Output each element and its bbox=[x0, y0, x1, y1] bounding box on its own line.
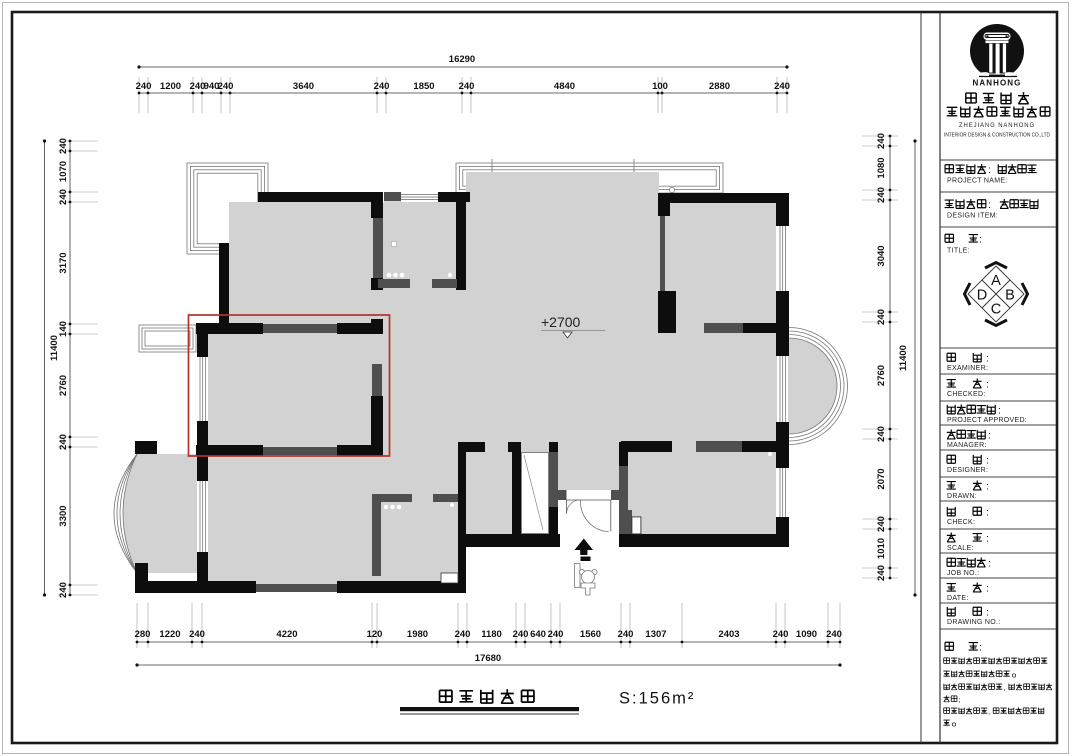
svg-text::: : bbox=[988, 199, 991, 211]
svg-text:DATE:: DATE: bbox=[947, 595, 969, 602]
svg-text:1090: 1090 bbox=[796, 629, 817, 640]
svg-text:240: 240 bbox=[374, 81, 390, 92]
svg-text:1080: 1080 bbox=[876, 157, 887, 178]
svg-text:4840: 4840 bbox=[554, 81, 575, 92]
svg-text:A: A bbox=[991, 273, 1001, 289]
svg-text:D: D bbox=[977, 288, 987, 304]
svg-text::: : bbox=[986, 533, 989, 545]
svg-text:240: 240 bbox=[876, 426, 887, 442]
svg-text:140: 140 bbox=[58, 321, 69, 337]
svg-text::: : bbox=[986, 455, 989, 467]
svg-text:240: 240 bbox=[218, 81, 234, 92]
svg-text::: : bbox=[986, 353, 989, 365]
svg-text:MANAGER:: MANAGER: bbox=[947, 442, 987, 449]
svg-text:17680: 17680 bbox=[475, 653, 501, 664]
svg-text:240: 240 bbox=[774, 81, 790, 92]
svg-text:C: C bbox=[991, 302, 1001, 318]
svg-text:B: B bbox=[1005, 288, 1015, 304]
svg-text:240: 240 bbox=[459, 81, 475, 92]
svg-text:1980: 1980 bbox=[407, 629, 428, 640]
svg-text::: : bbox=[988, 430, 991, 442]
svg-text:240: 240 bbox=[513, 629, 529, 640]
svg-text:120: 120 bbox=[367, 629, 383, 640]
svg-text:1307: 1307 bbox=[645, 629, 666, 640]
svg-text:+2700: +2700 bbox=[541, 314, 581, 330]
svg-text:3170: 3170 bbox=[58, 252, 69, 273]
svg-text:2760: 2760 bbox=[876, 365, 887, 386]
svg-text:S:156m²: S:156m² bbox=[619, 690, 695, 708]
svg-text:,: , bbox=[1004, 683, 1006, 692]
svg-text::: : bbox=[998, 405, 1001, 417]
svg-text:240: 240 bbox=[826, 629, 842, 640]
svg-text::: : bbox=[979, 642, 982, 654]
svg-text:240: 240 bbox=[189, 629, 205, 640]
svg-text:240: 240 bbox=[876, 133, 887, 149]
svg-text:1070: 1070 bbox=[58, 161, 69, 182]
svg-text:240: 240 bbox=[876, 187, 887, 203]
svg-text:1010: 1010 bbox=[876, 538, 887, 559]
svg-text:DESIGNER:: DESIGNER: bbox=[947, 467, 988, 474]
svg-text:1180: 1180 bbox=[481, 629, 502, 640]
svg-text:EXAMINER:: EXAMINER: bbox=[947, 365, 988, 372]
svg-text:100: 100 bbox=[652, 81, 668, 92]
svg-text::: : bbox=[986, 583, 989, 595]
svg-text:SCALE:: SCALE: bbox=[947, 545, 974, 552]
svg-text:3300: 3300 bbox=[58, 505, 69, 526]
svg-text:11400: 11400 bbox=[898, 345, 909, 371]
svg-text:240: 240 bbox=[58, 434, 69, 450]
svg-text:240: 240 bbox=[58, 189, 69, 205]
svg-text:TITLE:: TITLE: bbox=[947, 248, 970, 255]
svg-text:DESIGN ITEM:: DESIGN ITEM: bbox=[947, 213, 998, 220]
svg-text:CHECKED:: CHECKED: bbox=[947, 391, 986, 398]
svg-text:PROJECT NAME:: PROJECT NAME: bbox=[947, 178, 1008, 185]
svg-text:1850: 1850 bbox=[413, 81, 434, 92]
svg-text:NANHONG: NANHONG bbox=[972, 79, 1021, 88]
svg-text:640: 640 bbox=[530, 629, 546, 640]
svg-text:240: 240 bbox=[58, 138, 69, 154]
svg-text:240: 240 bbox=[618, 629, 634, 640]
svg-text:ZHEJIANG NANHONG: ZHEJIANG NANHONG bbox=[959, 123, 1035, 129]
svg-text:280: 280 bbox=[135, 629, 151, 640]
svg-text::: : bbox=[979, 234, 982, 246]
svg-text:1560: 1560 bbox=[580, 629, 601, 640]
svg-text:240: 240 bbox=[58, 582, 69, 598]
svg-text:240: 240 bbox=[548, 629, 564, 640]
svg-text:2760: 2760 bbox=[58, 375, 69, 396]
svg-text:16290: 16290 bbox=[449, 54, 475, 65]
svg-text:240: 240 bbox=[876, 516, 887, 532]
svg-text:1200: 1200 bbox=[160, 81, 181, 92]
svg-text:3640: 3640 bbox=[293, 81, 314, 92]
svg-text:11400: 11400 bbox=[49, 335, 60, 361]
svg-text:JOB NO.:: JOB NO.: bbox=[947, 570, 979, 577]
svg-text::: : bbox=[986, 481, 989, 493]
svg-text:240: 240 bbox=[876, 309, 887, 325]
svg-text:3040: 3040 bbox=[876, 245, 887, 266]
svg-text:240: 240 bbox=[773, 629, 789, 640]
svg-text:,: , bbox=[988, 707, 990, 716]
svg-text:2403: 2403 bbox=[718, 629, 739, 640]
svg-text:;: ; bbox=[959, 695, 961, 704]
svg-text::: : bbox=[986, 507, 989, 519]
svg-text::: : bbox=[988, 558, 991, 570]
svg-text:240: 240 bbox=[455, 629, 471, 640]
svg-text:INTERIOR DESIGN & CONSTRUCTION: INTERIOR DESIGN & CONSTRUCTION CO.,LTD bbox=[944, 133, 1050, 139]
svg-text::: : bbox=[986, 607, 989, 619]
svg-text:DRAWN:: DRAWN: bbox=[947, 493, 977, 500]
svg-text::: : bbox=[988, 164, 991, 176]
svg-text:2070: 2070 bbox=[876, 468, 887, 489]
svg-text:PROJECT APPROVED:: PROJECT APPROVED: bbox=[947, 417, 1027, 424]
svg-text:240: 240 bbox=[136, 81, 152, 92]
svg-text::: : bbox=[986, 379, 989, 391]
svg-text:4220: 4220 bbox=[276, 629, 297, 640]
svg-text:2880: 2880 bbox=[709, 81, 730, 92]
svg-text:240: 240 bbox=[876, 565, 887, 581]
svg-text:CHECK:: CHECK: bbox=[947, 519, 975, 526]
svg-text:DRAWING NO.:: DRAWING NO.: bbox=[947, 619, 1001, 626]
svg-text:1220: 1220 bbox=[159, 629, 180, 640]
